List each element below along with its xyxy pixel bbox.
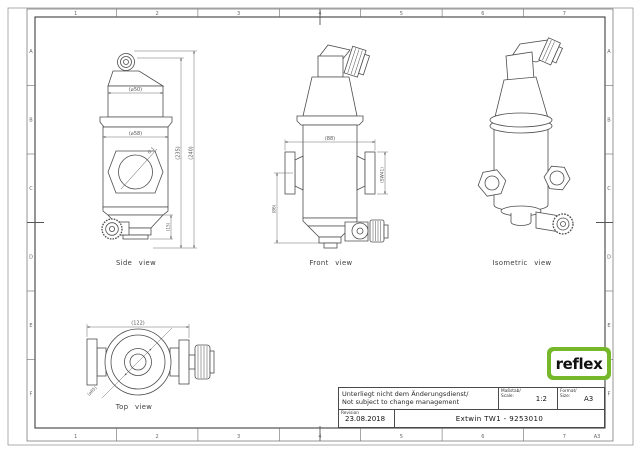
zone-col-top-7: 7 — [563, 11, 566, 17]
drawing-canvas: 1 2 3 4 5 6 7 1 2 3 4 5 6 7 A B C D E F … — [0, 0, 640, 452]
zone-row-left-f: F — [30, 392, 33, 398]
front-base — [319, 237, 341, 243]
zone-col-bottom-7: 7 — [563, 434, 566, 440]
zone-col-top-5: 5 — [400, 11, 403, 17]
front-right-port — [357, 152, 375, 194]
vent-knob — [118, 54, 135, 71]
zone-row-right-f: F — [608, 392, 611, 398]
drawing-title: Extwin TW1 - 9253010 — [395, 410, 604, 427]
front-view-label: Front view — [309, 259, 352, 267]
dim-label-122: (122) — [131, 321, 144, 327]
zone-row-right-a: A — [607, 49, 611, 55]
title-block: Unterliegt nicht dem Änderungsdienst/ No… — [338, 387, 605, 428]
zone-col-bottom-6: 6 — [481, 434, 484, 440]
reflex-logo: reflex — [547, 347, 611, 380]
dim-label-235: (235) — [176, 146, 182, 159]
drawing-sheet: 1 2 3 4 5 6 7 1 2 3 4 5 6 7 A B C D E F … — [0, 0, 640, 452]
zone-col-bottom-3: 3 — [237, 434, 240, 440]
scale-cell: Maßstab/ Scale: 1:2 — [499, 388, 558, 409]
revision-date: 23.08.2018 — [345, 417, 392, 422]
format-value: A3 — [584, 397, 593, 402]
side-view-label: Side view — [116, 259, 156, 267]
iso-right-union-nut — [544, 166, 570, 190]
zone-col-bottom-4: 4 — [318, 434, 321, 440]
zone-row-left-e: E — [29, 323, 32, 329]
zone-row-left-d: D — [29, 255, 33, 261]
isometric-view-label: Isometric view — [492, 259, 551, 267]
dim-label-86: (86) — [272, 204, 278, 213]
side-shoulder — [108, 71, 163, 86]
zone-row-left-b: B — [29, 118, 33, 124]
zone-col-top-1: 1 — [74, 11, 77, 17]
logo-wordmark: reflex — [556, 355, 603, 373]
dim-label-15: (15) — [165, 222, 171, 231]
zone-col-bottom-1: 1 — [74, 434, 77, 440]
dim-label-sw41: (SW41) — [380, 167, 386, 183]
front-shoulder — [303, 77, 357, 116]
zone-col-top-3: 3 — [237, 11, 240, 17]
change-note-cell: Unterliegt nicht dem Änderungsdienst/ No… — [339, 388, 499, 409]
side-view-drawing: (⌀50) (⌀58) (235) (240) (15) G 1 Side vi… — [100, 51, 197, 267]
zone-col-top-6: 6 — [481, 11, 484, 17]
front-base-stub — [324, 243, 337, 248]
zone-col-bottom-5: 5 — [400, 434, 403, 440]
scale-value: 1:2 — [536, 397, 547, 402]
change-note-english: Not subject to change management — [342, 398, 495, 406]
zone-row-right-c: C — [607, 186, 611, 192]
dim-label-88: (88) — [325, 136, 335, 142]
zone-row-right-e: E — [607, 323, 610, 329]
dim-label-240: (240) — [189, 146, 195, 159]
side-base-band — [103, 207, 168, 215]
title-block-row-2: Revision 23.08.2018 Extwin TW1 - 9253010 — [339, 410, 604, 427]
dim-label-d58: (⌀58) — [129, 131, 142, 137]
zone-row-right-d: D — [607, 255, 611, 261]
change-note-german: Unterliegt nicht dem Änderungsdienst/ — [342, 390, 495, 398]
format-label-en: Size: — [560, 394, 602, 399]
sheet-format-corner: A3 — [594, 434, 601, 440]
top-left-port — [87, 339, 106, 385]
iso-base-stub — [511, 213, 531, 226]
front-neck — [318, 56, 343, 77]
zone-col-bottom-2: 2 — [156, 434, 159, 440]
zone-col-top-2: 2 — [156, 11, 159, 17]
iso-drain-valve — [536, 212, 573, 234]
zone-col-top-4: 4 — [318, 11, 321, 17]
front-drain-valve — [345, 220, 388, 242]
dim-label-d65: (⌀65) — [86, 385, 99, 398]
top-view-label: Top view — [115, 403, 153, 411]
isometric-view-drawing: Isometric view — [478, 38, 573, 267]
iso-flange-upper — [490, 113, 552, 127]
iso-body — [494, 126, 548, 211]
format-cell: Format/ Size: A3 — [558, 388, 604, 409]
side-hex-nut — [108, 149, 163, 193]
side-base-lip — [123, 235, 148, 239]
side-flange — [100, 117, 172, 127]
zone-row-right-b: B — [607, 118, 611, 124]
top-view-drawing: (122) (⌀65) Top view — [86, 321, 214, 412]
front-flange — [297, 116, 363, 125]
title-block-row-1: Unterliegt nicht dem Änderungsdienst/ No… — [339, 388, 604, 410]
zone-row-left-a: A — [29, 49, 33, 55]
zone-row-left-c: C — [29, 186, 33, 192]
dim-label-d50: (⌀50) — [129, 87, 142, 93]
revision-cell: Revision 23.08.2018 — [339, 410, 395, 427]
front-view-drawing: (88) (SW41) (86) Front view — [272, 45, 389, 267]
top-right-port — [170, 340, 214, 384]
